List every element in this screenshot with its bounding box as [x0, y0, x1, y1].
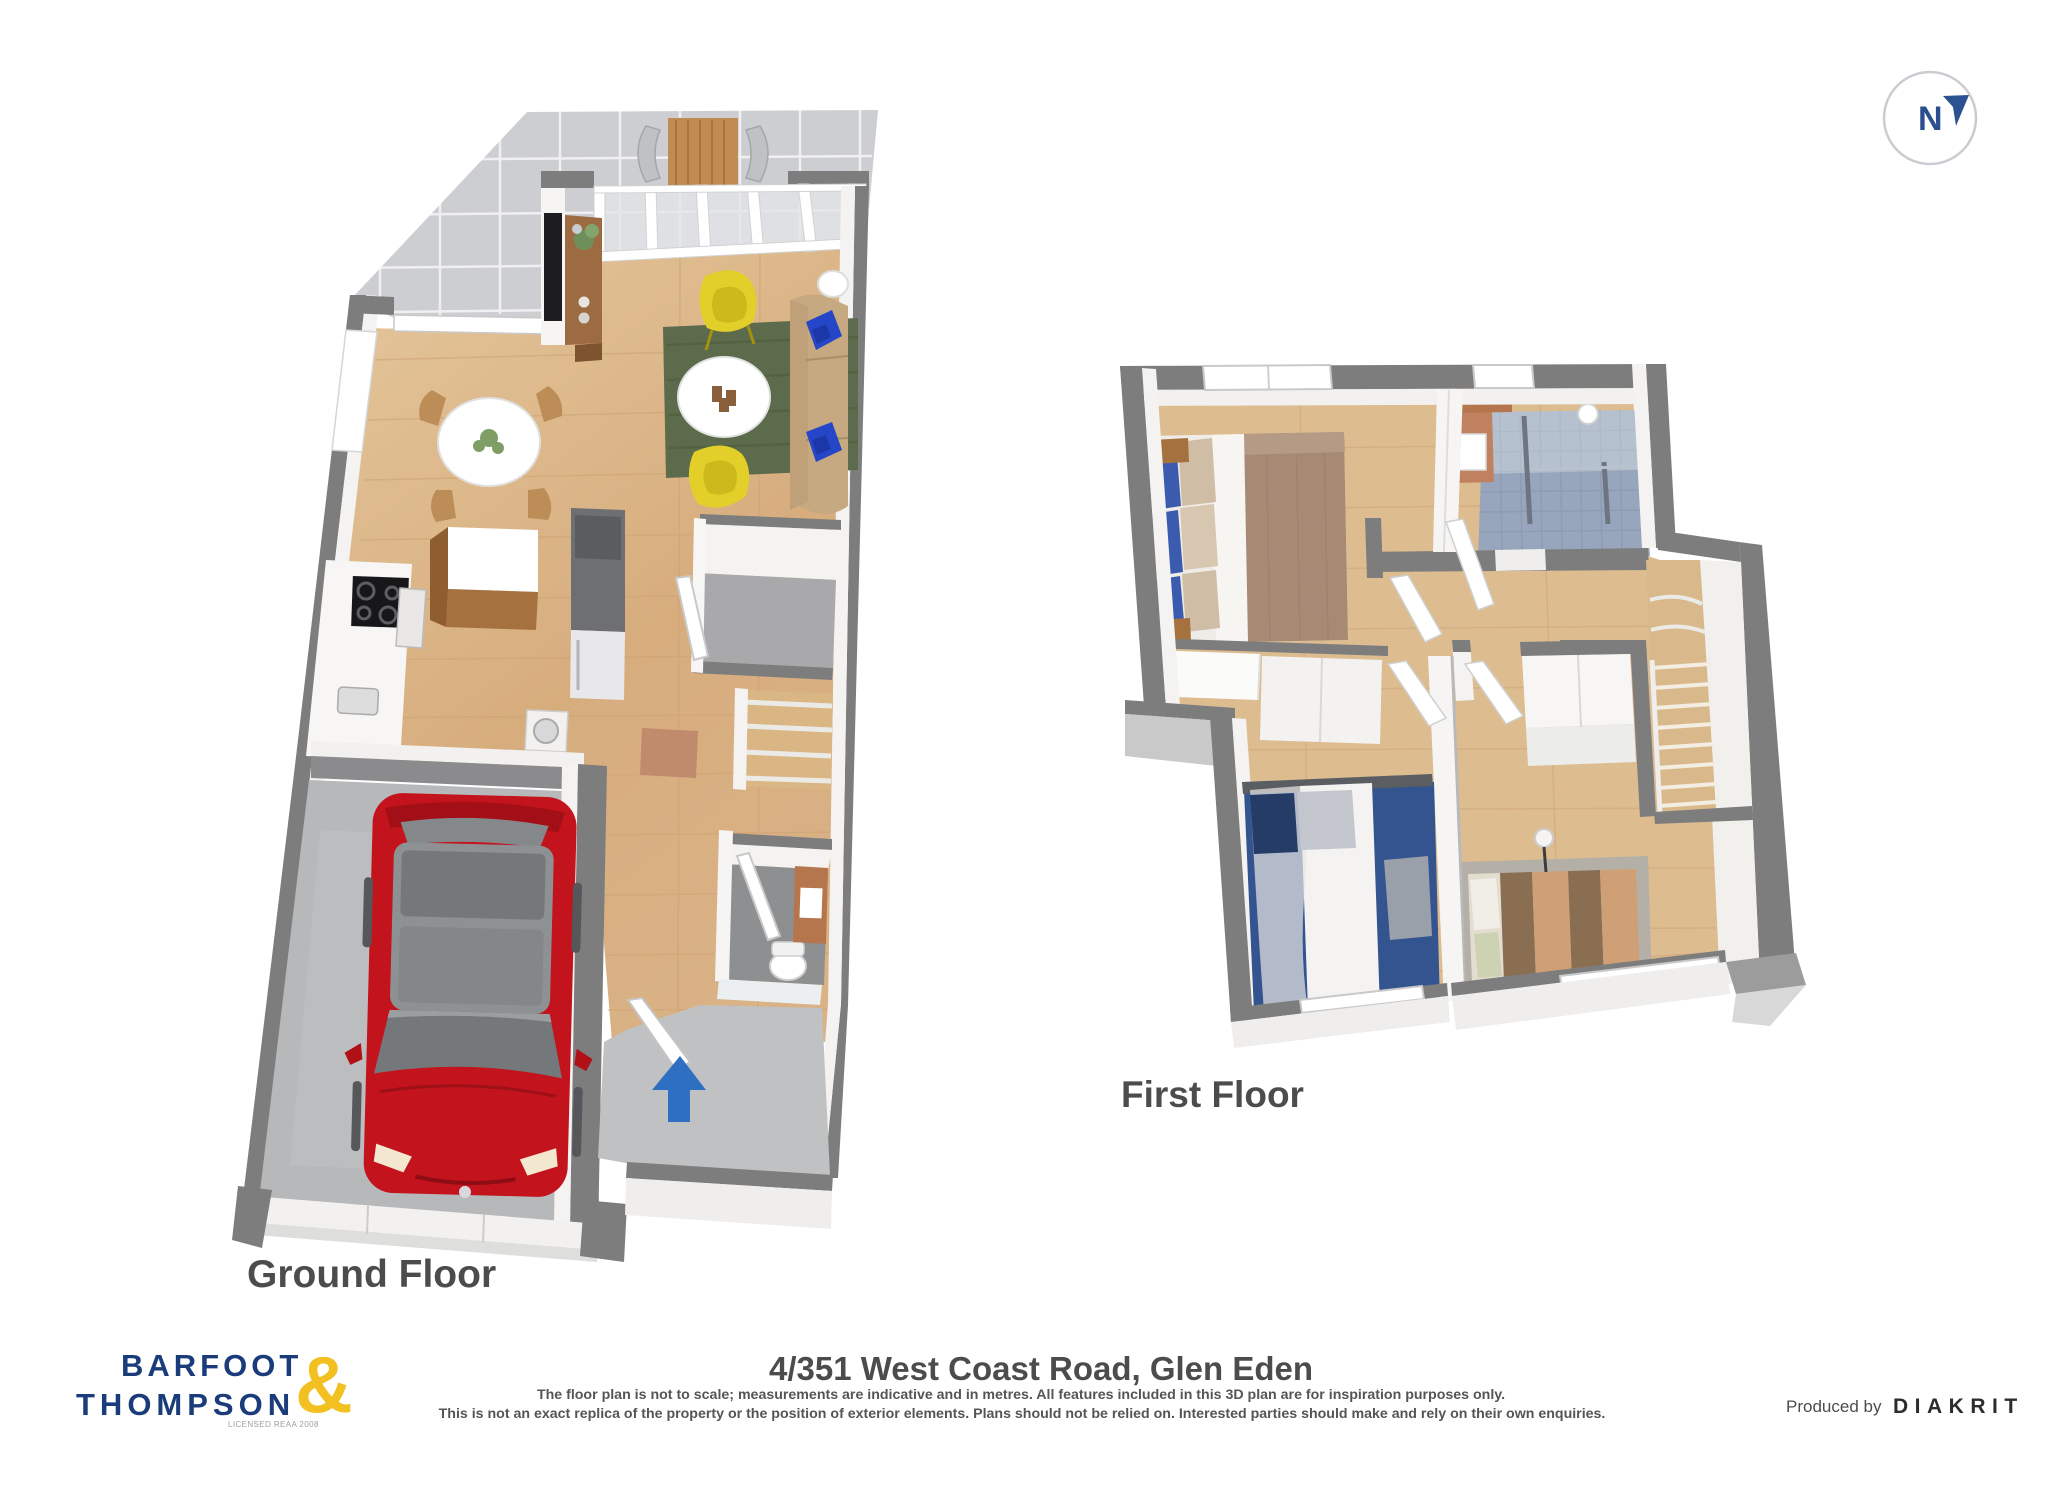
svg-text:This is not an exact replica o: This is not an exact replica of the prop… — [439, 1406, 1606, 1422]
svg-text:DIAKRIT: DIAKRIT — [1893, 1395, 2024, 1418]
svg-text:Ground Floor: Ground Floor — [247, 1253, 496, 1296]
svg-text:First Floor: First Floor — [1121, 1074, 1304, 1115]
svg-text:N: N — [1918, 100, 1943, 138]
svg-text:4/351 West Coast Road, Glen Ed: 4/351 West Coast Road, Glen Eden — [769, 1350, 1313, 1387]
svg-text:The floor plan is not to scale: The floor plan is not to scale; measurem… — [537, 1387, 1505, 1403]
svg-text:THOMPSON: THOMPSON — [76, 1387, 295, 1422]
svg-text:Produced by: Produced by — [1786, 1397, 1882, 1416]
svg-text:&: & — [295, 1340, 353, 1429]
svg-text:BARFOOT: BARFOOT — [121, 1348, 302, 1383]
svg-text:LICENSED REAA 2008: LICENSED REAA 2008 — [228, 1420, 319, 1429]
